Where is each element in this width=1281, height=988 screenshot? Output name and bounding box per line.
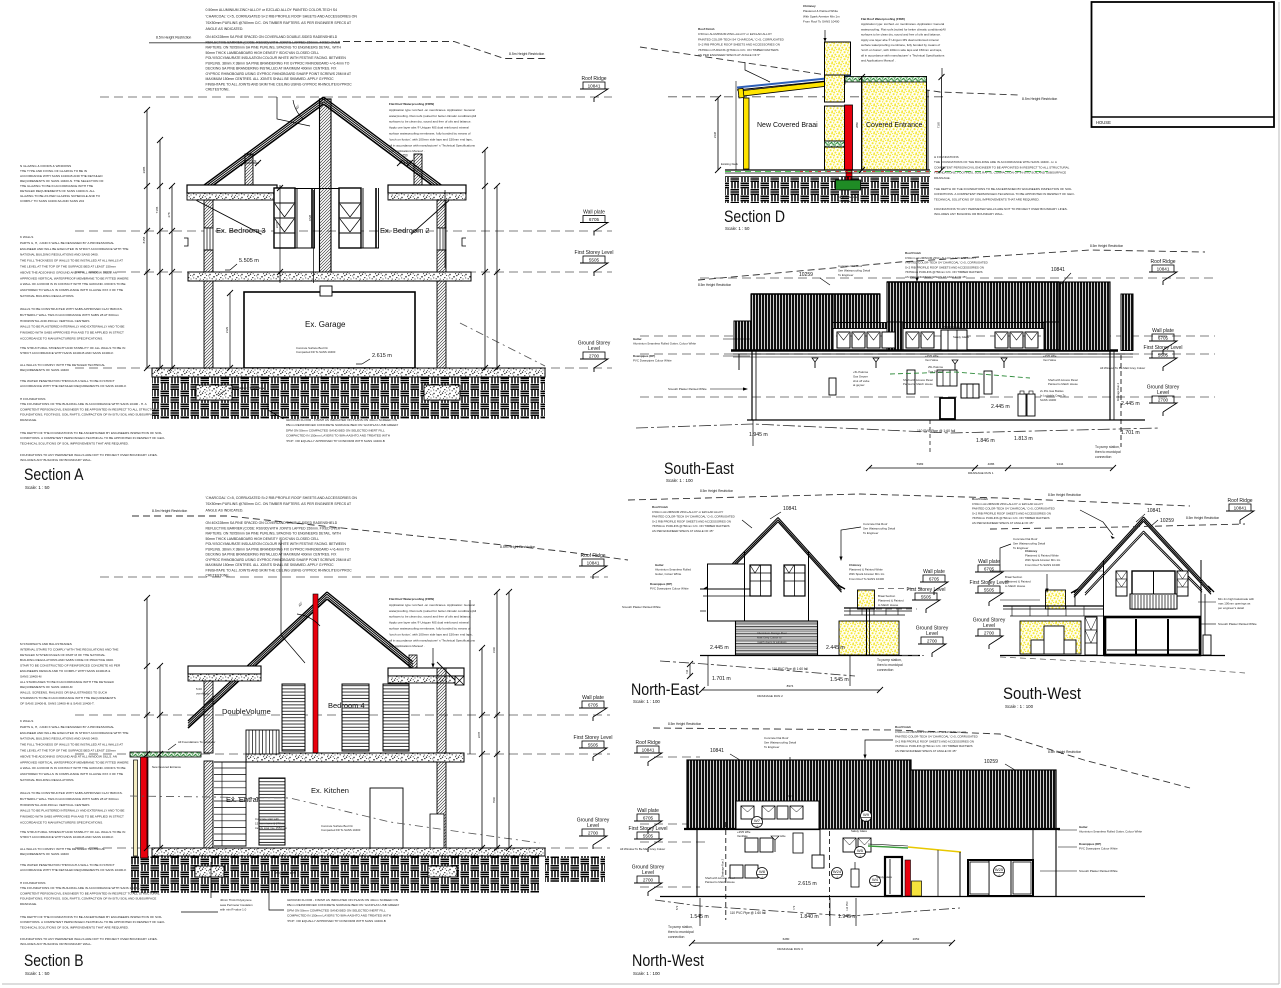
- svg-text:4: 4: [756, 825, 758, 829]
- svg-text:4: 4: [836, 876, 838, 880]
- svg-text:5505: 5505: [984, 588, 995, 593]
- svg-text:THE STRUCTURAL STRENGTH AND ST: THE STRUCTURAL STRENGTH AND STABILITY OF…: [20, 830, 125, 839]
- svg-text:Smooth Plaster Painted White: Smooth Plaster Painted White: [1218, 622, 1257, 626]
- svg-text:5505: 5505: [1158, 353, 1169, 358]
- svg-text:Ventilate: Ventilate: [737, 834, 748, 838]
- svg-text:Ex. Garage: Ex. Garage: [305, 320, 346, 329]
- svg-text:Scale: 1 : 100: Scale: 1 : 100: [666, 478, 693, 483]
- svg-text:579: 579: [675, 905, 679, 910]
- svg-text:2700: 2700: [588, 831, 599, 836]
- svg-text:744: 744: [685, 669, 689, 674]
- svg-text:10841: 10841: [783, 506, 797, 512]
- svg-text:2.445 m: 2.445 m: [710, 645, 729, 651]
- svg-text:Wall plate: Wall plate: [978, 559, 1000, 565]
- svg-text:8.5m Height Restriction: 8.5m Height Restriction: [152, 509, 187, 513]
- svg-text:10841: 10841: [588, 84, 601, 89]
- svg-text:1.545 m: 1.545 m: [690, 914, 709, 920]
- svg-text:8.5m Height Restriction: 8.5m Height Restriction: [156, 36, 191, 40]
- svg-text:10259: 10259: [1160, 518, 1174, 524]
- svg-text:8.5m Height Restriction: 8.5m Height Restriction: [698, 283, 731, 287]
- svg-text:10841: 10841: [642, 748, 655, 753]
- svg-text:DRAINAGE RUN 2: DRAINAGE RUN 2: [757, 694, 783, 698]
- svg-text:Ex. Bedroom 3: Ex. Bedroom 3: [216, 226, 266, 235]
- svg-text:779: 779: [792, 905, 796, 910]
- svg-text:2985: 2985: [142, 166, 146, 173]
- svg-text:First Storey Level: First Storey Level: [1144, 345, 1183, 351]
- svg-text:1.945 m: 1.945 m: [838, 914, 857, 920]
- svg-text:110 PVC: 110 PVC: [846, 901, 849, 911]
- svg-text:HOUSE: HOUSE: [1096, 120, 1111, 125]
- svg-text:Ex. Kitchen: Ex. Kitchen: [311, 786, 349, 795]
- svg-text:THE STRUCTURAL STRENGTH AND ST: THE STRUCTURAL STRENGTH AND STABILITY OF…: [20, 346, 125, 355]
- svg-text:DRAINAGE RUN 3: DRAINAGE RUN 3: [777, 947, 803, 951]
- svg-text:K WALLSPARTS G, H, J AND K WAL: K WALLSPARTS G, H, J AND K WALL BE DESIG…: [20, 719, 129, 782]
- svg-text:4728: 4728: [308, 214, 312, 221]
- svg-text:Wall plate: Wall plate: [1152, 328, 1174, 334]
- svg-text:3160: 3160: [492, 646, 496, 653]
- svg-text:Safety Glass: Safety Glass: [953, 335, 969, 339]
- svg-text:Level: Level: [642, 870, 654, 876]
- svg-text:8974: 8974: [787, 684, 794, 688]
- svg-text:Level: Level: [588, 346, 600, 352]
- svg-text:8.5m Height Restriction: 8.5m Height Restriction: [1186, 516, 1219, 520]
- svg-text:5983: 5983: [917, 462, 924, 466]
- svg-text:Scale: 1 : 50: Scale: 1 : 50: [25, 971, 50, 976]
- svg-text:1.813 m: 1.813 m: [1014, 436, 1033, 442]
- svg-text:Safety Glass: Safety Glass: [944, 325, 960, 329]
- svg-text:8.5m Height Restriction: 8.5m Height Restriction: [509, 52, 544, 56]
- svg-text:8.5m Height Restriction: 8.5m Height Restriction: [500, 545, 535, 549]
- svg-text:DoubleVolume: DoubleVolume: [222, 707, 271, 716]
- svg-text:2.615 m: 2.615 m: [798, 881, 817, 887]
- svg-text:Wall plate: Wall plate: [637, 808, 659, 814]
- svg-text:W24: W24: [833, 869, 842, 874]
- svg-text:Section D: Section D: [724, 208, 785, 226]
- svg-text:New Covered Braai: New Covered Braai: [757, 122, 818, 129]
- svg-text:7960: 7960: [492, 796, 496, 803]
- svg-text:2278: 2278: [477, 731, 481, 738]
- svg-text:Roof Ridge: Roof Ridge: [1150, 259, 1175, 265]
- svg-text:Scale : 1 : 100: Scale : 1 : 100: [1005, 704, 1034, 709]
- svg-text:Level: Level: [587, 823, 599, 829]
- svg-text:South-West: South-West: [1003, 685, 1081, 703]
- svg-text:2129: 2129: [225, 326, 229, 333]
- svg-text:Scale: 1 : 50: Scale: 1 : 50: [725, 226, 750, 231]
- svg-text:Level: Level: [983, 623, 995, 629]
- svg-text:First Storey Level: First Storey Level: [574, 735, 613, 741]
- svg-text:4: 4: [761, 876, 763, 880]
- svg-text:4086: 4086: [988, 462, 995, 466]
- svg-text:Level: Level: [1157, 390, 1169, 396]
- svg-text:110 PVC Pipe @ 1:60 fall: 110 PVC Pipe @ 1:60 fall: [772, 667, 808, 671]
- svg-text:ON 40X228mm SA PINE SPACED ON: ON 40X228mm SA PINE SPACED ON COVERLAND …: [206, 521, 353, 578]
- svg-text:6705: 6705: [1158, 336, 1169, 341]
- svg-text:2700: 2700: [643, 878, 654, 883]
- svg-text:1.945 m: 1.945 m: [749, 432, 768, 438]
- svg-text:Shaft with Access PanelPainted: Shaft with Access PanelPainted to Match …: [1048, 378, 1078, 386]
- svg-text:Roof Ridge: Roof Ridge: [581, 76, 606, 82]
- svg-text:W8: W8: [759, 869, 766, 874]
- svg-text:Wall plate: Wall plate: [923, 569, 945, 575]
- svg-text:10841: 10841: [1234, 506, 1247, 511]
- svg-text:6705: 6705: [588, 703, 599, 708]
- svg-text:5.505 m: 5.505 m: [239, 258, 259, 264]
- svg-text:Flat Roof Waterproofing (FRW)A: Flat Roof Waterproofing (FRW)Application…: [861, 17, 946, 63]
- svg-text:THE WATER PENETRATION THROUGH: THE WATER PENETRATION THROUGH A WALL TO …: [20, 379, 127, 388]
- svg-text:Section A: Section A: [24, 466, 84, 484]
- svg-text:2700: 2700: [589, 354, 600, 359]
- svg-text:North-East: North-East: [631, 681, 699, 699]
- svg-text:1.846 m: 1.846 m: [976, 438, 995, 444]
- svg-text:1.701 m: 1.701 m: [1121, 430, 1140, 436]
- svg-text:8.5m Height Restriction: 8.5m Height Restriction: [1048, 750, 1081, 754]
- svg-text:Ex. Bedroom 2: Ex. Bedroom 2: [380, 226, 430, 235]
- svg-text:First Storey Level: First Storey Level: [629, 826, 668, 832]
- svg-text:Section B: Section B: [24, 952, 84, 970]
- svg-text:8.5m Height Restriction: 8.5m Height Restriction: [668, 722, 701, 726]
- svg-text:7165: 7165: [937, 121, 941, 128]
- svg-text:First Storey Level: First Storey Level: [575, 250, 614, 256]
- svg-text:2278: 2278: [275, 221, 279, 228]
- svg-text:2338: 2338: [713, 131, 717, 138]
- svg-text:Smooth Plaster Painted White: Smooth Plaster Painted White: [622, 605, 661, 609]
- svg-text:First Storey Level: First Storey Level: [907, 587, 946, 593]
- svg-text:Smooth Plaster Painted White: Smooth Plaster Painted White: [668, 387, 707, 391]
- svg-text:W25: W25: [995, 867, 1004, 872]
- svg-text:4: 4: [865, 819, 867, 823]
- svg-text:4: 4: [998, 874, 1000, 878]
- svg-text:DRAINAGE RUN 1: DRAINAGE RUN 1: [968, 471, 994, 475]
- svg-text:110 PVC Pipe @ 1:60 fall: 110 PVC Pipe @ 1:60 fall: [917, 429, 955, 433]
- svg-text:8.5m Height Restriction: 8.5m Height Restriction: [1090, 244, 1123, 248]
- svg-text:10259: 10259: [984, 759, 998, 765]
- svg-text:2.445 m: 2.445 m: [826, 645, 845, 651]
- svg-text:New Covered Entrance: New Covered Entrance: [152, 765, 181, 769]
- svg-text:2.445 m: 2.445 m: [1121, 401, 1140, 407]
- svg-text:+25/5 WîleVent Valve: +25/5 WîleVent Valve: [1043, 354, 1057, 362]
- svg-text:8.5m Height Restriction: 8.5m Height Restriction: [1022, 97, 1057, 101]
- svg-text:1.701 m: 1.701 m: [712, 676, 731, 682]
- svg-text:750: 750: [247, 154, 253, 158]
- svg-text:4: 4: [874, 884, 876, 888]
- svg-text:5505: 5505: [921, 595, 932, 600]
- svg-text:5505: 5505: [588, 743, 599, 748]
- svg-text:110 PVC Pipe @ 1:60 fall: 110 PVC Pipe @ 1:60 fall: [730, 911, 766, 915]
- svg-text:Smooth Plaster Painted White: Smooth Plaster Painted White: [1079, 869, 1118, 873]
- svg-text:W7: W7: [754, 818, 761, 823]
- svg-text:6705: 6705: [929, 577, 940, 582]
- svg-text:2.445 m: 2.445 m: [991, 404, 1010, 410]
- svg-text:7165: 7165: [155, 206, 159, 213]
- svg-text:Scale: 1 : 50: Scale: 1 : 50: [25, 485, 50, 490]
- svg-text:Level: Level: [926, 631, 938, 637]
- svg-text:8158: 8158: [142, 236, 146, 243]
- svg-text:10841: 10841: [1157, 267, 1170, 272]
- svg-text:2700: 2700: [984, 631, 995, 636]
- svg-text:10841: 10841: [710, 748, 724, 754]
- svg-text:Shaft with Access PanelPainted: Shaft with Access PanelPainted to Match …: [705, 876, 735, 884]
- svg-text:Roof Ridge: Roof Ridge: [635, 740, 660, 746]
- svg-text:Flat Roof Waterproofing (FRW)A: Flat Roof Waterproofing (FRW)Application…: [389, 102, 476, 153]
- svg-text:Scale: 1 : 100: Scale: 1 : 100: [633, 699, 660, 704]
- svg-text:9444: 9444: [1057, 462, 1064, 466]
- svg-text:All Window To Be Matt Grey Col: All Window To Be Matt Grey Colour: [620, 847, 665, 851]
- svg-text:Flat Roof Waterproofing (FRW)A: Flat Roof Waterproofing (FRW)Application…: [389, 597, 476, 648]
- svg-text:278: 278: [167, 212, 171, 217]
- svg-text:North-West: North-West: [632, 952, 704, 970]
- svg-text:Wall plate: Wall plate: [583, 210, 605, 216]
- svg-text:white: white: [780, 835, 786, 838]
- svg-text:W9: W9: [863, 812, 870, 817]
- svg-text:4: 4: [859, 855, 861, 859]
- svg-text:1.545 m: 1.545 m: [830, 677, 849, 683]
- svg-text:8.5m Height Restriction: 8.5m Height Restriction: [1048, 493, 1081, 497]
- svg-text:ON 40X228mm SA PINE SPACED ON: ON 40X228mm SA PINE SPACED ON COVERLAND …: [206, 35, 353, 92]
- svg-text:Drainage Run 2: Drainage Run 2: [1116, 382, 1120, 401]
- svg-text:+25/5 WîleVent Valve: +25/5 WîleVent Valve: [925, 354, 939, 362]
- svg-text:2700: 2700: [927, 639, 938, 644]
- svg-text:8.5m Height Restriction: 8.5m Height Restriction: [700, 489, 733, 493]
- svg-text:2700: 2700: [1158, 398, 1169, 403]
- svg-text:10841: 10841: [587, 561, 600, 566]
- svg-text:South-East: South-East: [664, 460, 734, 478]
- svg-text:GROUND FLOOR - FINISH AS INDIC: GROUND FLOOR - FINISH AS INDICATED ON PL…: [287, 898, 400, 923]
- svg-text:25L PalomaGas Geyser: 25L PalomaGas Geyser: [928, 365, 943, 373]
- svg-text:Shaft with Access PanelPainted: Shaft with Access PanelPainted to Match …: [903, 378, 933, 386]
- svg-text:750: 750: [402, 154, 408, 158]
- svg-text:6705: 6705: [589, 217, 600, 222]
- svg-text:Covered Entrance: Covered Entrance: [866, 122, 923, 129]
- svg-text:Bedroom 4: Bedroom 4: [328, 701, 365, 710]
- svg-text:5505: 5505: [589, 258, 600, 263]
- svg-text:Safety Glass: Safety Glass: [851, 829, 867, 833]
- svg-text:Drainage Run 2: Drainage Run 2: [721, 858, 725, 877]
- svg-text:Safety Glass: Safety Glass: [876, 875, 892, 879]
- svg-text:6280: 6280: [783, 937, 790, 941]
- svg-text:1.840 m: 1.840 m: [800, 914, 819, 920]
- svg-text:THE WATER PENETRATION THROUGH: THE WATER PENETRATION THROUGH A WALL TO …: [20, 863, 127, 872]
- svg-text:10841: 10841: [1051, 267, 1065, 273]
- svg-text:2860: 2860: [855, 122, 859, 128]
- svg-text:6705: 6705: [643, 816, 654, 821]
- svg-text:All Foundations To Engineer: All Foundations To Engineer: [228, 386, 265, 390]
- svg-text:GROUND FLOOR - FINISH AS INDIC: GROUND FLOOR - FINISH AS INDICATED ON PL…: [286, 418, 399, 443]
- svg-text:W5: W5: [857, 848, 864, 853]
- svg-text:5505: 5505: [643, 834, 654, 839]
- svg-text:Roof Ridge: Roof Ridge: [1227, 498, 1252, 504]
- svg-text:First Storey Level: First Storey Level: [970, 580, 1009, 586]
- svg-text:All Window To Be Matt Grey Col: All Window To Be Matt Grey Colour: [1100, 366, 1145, 370]
- svg-text:Wall plate: Wall plate: [582, 695, 604, 701]
- svg-text:All Foundations To Engineer: All Foundations To Engineer: [178, 740, 215, 744]
- svg-text:K WALLSPARTS G, H, J AND K WAL: K WALLSPARTS G, H, J AND K WALL BE DESIG…: [20, 235, 129, 298]
- svg-text:Scale: 1 : 100: Scale: 1 : 100: [633, 971, 660, 976]
- svg-text:2.615 m: 2.615 m: [372, 353, 392, 359]
- svg-text:10259: 10259: [799, 272, 813, 278]
- svg-text:10841: 10841: [1147, 508, 1161, 514]
- svg-text:2052: 2052: [913, 937, 920, 941]
- svg-text:250 Wplain DPM: 250 Wplain DPM: [275, 871, 297, 875]
